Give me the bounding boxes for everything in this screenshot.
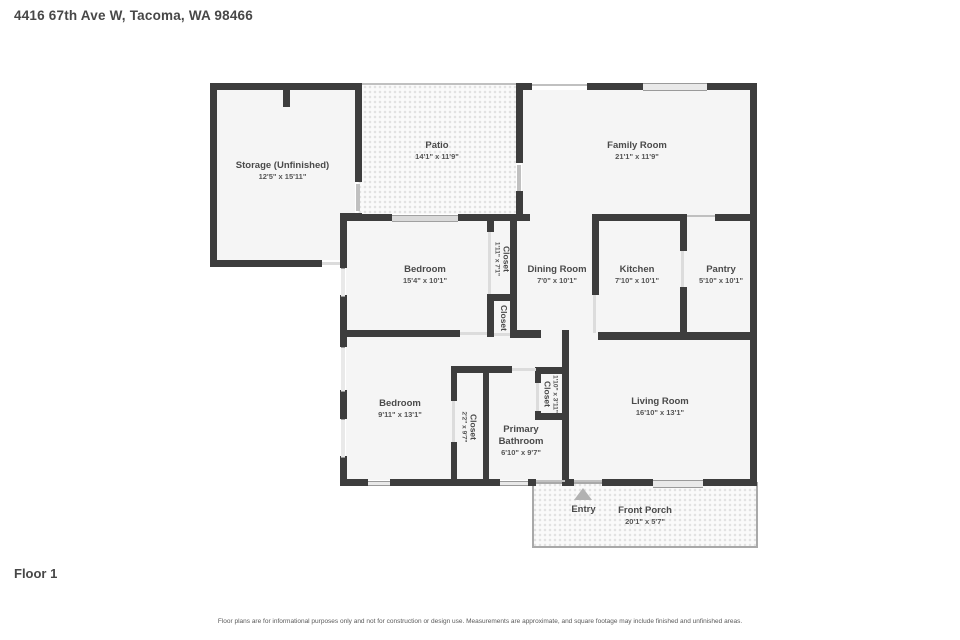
wall-segment bbox=[483, 366, 512, 373]
wall-segment bbox=[487, 220, 494, 232]
bedroom-upper-window bbox=[341, 268, 345, 297]
front-door bbox=[574, 480, 602, 482]
room-dimensions: 21'1" x 11'9" bbox=[557, 152, 717, 161]
room-name: Pantry bbox=[681, 264, 761, 276]
entry-arrow-icon bbox=[574, 488, 592, 500]
wall-segment bbox=[516, 83, 523, 163]
closet-hall-upper-door bbox=[488, 232, 491, 294]
porch-side-opening bbox=[536, 480, 565, 482]
room-label-storage: Storage (Unfinished) 12'5" x 15'11" bbox=[212, 160, 353, 181]
room-label-closet-hall-upper: Closet 1'11" x 7'1" bbox=[493, 242, 510, 276]
floor-plan-page: 4416 67th Ave W, Tacoma, WA 98466 Storag… bbox=[0, 0, 960, 640]
room-name: Bedroom bbox=[365, 264, 485, 276]
room-name: Family Room bbox=[557, 140, 717, 152]
bathroom-door bbox=[512, 368, 536, 371]
room-label-bedroom-upper: Bedroom 15'4" x 10'1" bbox=[365, 264, 485, 285]
room-dimensions: 7'0" x 10'1" bbox=[517, 276, 597, 285]
wall-segment bbox=[602, 479, 653, 486]
patio-family-opening bbox=[517, 165, 521, 191]
closet-bedroom-door bbox=[452, 401, 455, 442]
wall-segment bbox=[562, 330, 569, 486]
room-dimensions: 1'10" x 3'11" bbox=[551, 375, 558, 413]
room-label-pantry: Pantry 5'10" x 10'1" bbox=[681, 264, 761, 285]
family-room-window bbox=[643, 83, 707, 91]
wall-segment bbox=[565, 479, 574, 486]
floor-plan: Storage (Unfinished) 12'5" x 15'11" Pati… bbox=[0, 0, 960, 640]
room-label-family-room: Family Room 21'1" x 11'9" bbox=[557, 140, 717, 161]
living-room-window bbox=[653, 480, 703, 488]
wall-segment bbox=[355, 83, 362, 182]
wall-segment bbox=[340, 295, 347, 347]
wall-segment bbox=[283, 83, 290, 107]
wall-segment bbox=[510, 214, 517, 338]
wall-segment bbox=[680, 287, 687, 333]
storage-patio-opening bbox=[356, 184, 360, 211]
room-name: Bedroom bbox=[350, 398, 450, 410]
wall-segment bbox=[340, 330, 460, 337]
room-name: Closet bbox=[501, 246, 511, 272]
room-name: Closet bbox=[541, 381, 551, 407]
room-label-kitchen: Kitchen 7'10" x 10'1" bbox=[597, 264, 677, 285]
room-dimensions: 2'2" x 9'7" bbox=[460, 412, 467, 443]
room-dimensions: 5'10" x 10'1" bbox=[681, 276, 761, 285]
family-room-top-opening bbox=[532, 84, 587, 86]
room-dimensions: 14'1" x 11'9" bbox=[367, 152, 507, 161]
bedroom-lower-bottom-window bbox=[368, 481, 390, 486]
patio-edge-line bbox=[358, 83, 516, 85]
room-dimensions: 1'11" x 7'1" bbox=[493, 242, 500, 276]
room-dimensions: 16'10" x 13'1" bbox=[600, 408, 720, 417]
disclaimer-text: Floor plans are for informational purpos… bbox=[0, 618, 960, 625]
room-name: Closet bbox=[498, 305, 508, 331]
kitchen-dining-opening bbox=[593, 295, 596, 333]
room-dimensions: 12'5" x 15'11" bbox=[212, 172, 353, 181]
room-name: Living Room bbox=[600, 396, 720, 408]
room-label-closet-bedroom: Closet 2'2" x 9'7" bbox=[460, 412, 477, 443]
room-name: Entry bbox=[571, 504, 595, 515]
wall-segment bbox=[516, 83, 532, 90]
wall-segment bbox=[528, 479, 536, 486]
room-name: Patio bbox=[367, 140, 507, 152]
wall-segment bbox=[340, 214, 392, 221]
wall-segment bbox=[535, 374, 541, 383]
wall-segment bbox=[587, 83, 643, 90]
wall-segment bbox=[340, 390, 347, 419]
room-label-closet-hall-lower: Closet bbox=[498, 305, 508, 331]
room-label-bedroom-lower: Bedroom 9'11" x 13'1" bbox=[350, 398, 450, 419]
bathroom-window bbox=[500, 481, 528, 486]
room-label-entry: Entry bbox=[556, 504, 611, 515]
room-label-living-room: Living Room 16'10" x 13'1" bbox=[600, 396, 720, 417]
wall-segment bbox=[210, 260, 322, 267]
room-dimensions: 15'4" x 10'1" bbox=[365, 276, 485, 285]
wall-segment bbox=[680, 221, 687, 251]
wall-segment bbox=[598, 332, 750, 340]
room-name: Dining Room bbox=[517, 264, 597, 276]
room-name: Kitchen bbox=[597, 264, 677, 276]
wall-segment bbox=[535, 413, 568, 420]
room-name: Storage (Unfinished) bbox=[212, 160, 353, 172]
room-label-patio: Patio 14'1" x 11'9" bbox=[367, 140, 507, 161]
patio-sliding-door bbox=[392, 215, 458, 222]
closet-hall-lower-door bbox=[494, 333, 510, 336]
storage-door bbox=[322, 262, 340, 265]
wall-segment bbox=[592, 214, 687, 221]
wall-segment bbox=[487, 301, 494, 337]
wall-segment bbox=[340, 220, 347, 268]
room-dimensions: 20'1" x 5'7" bbox=[595, 517, 695, 526]
wall-segment bbox=[451, 442, 457, 480]
wall-segment bbox=[715, 214, 750, 221]
room-name: Primary Bathroom bbox=[481, 424, 561, 448]
room-dimensions: 9'11" x 13'1" bbox=[350, 410, 450, 419]
wall-segment bbox=[703, 479, 757, 486]
wall-segment bbox=[535, 367, 568, 374]
room-dimensions: 6'10" x 9'7" bbox=[481, 448, 561, 457]
wall-segment bbox=[510, 330, 541, 338]
room-dimensions: 7'10" x 10'1" bbox=[597, 276, 677, 285]
room-label-dining-room: Dining Room 7'0" x 10'1" bbox=[517, 264, 597, 285]
wall-segment bbox=[390, 479, 500, 486]
closet-bathroom-door bbox=[536, 383, 539, 411]
pantry-opening bbox=[687, 215, 715, 217]
floor-label: Floor 1 bbox=[14, 566, 57, 581]
room-label-closet-bathroom: 1'10" x 3'11" Closet bbox=[541, 375, 558, 413]
wall-segment bbox=[458, 214, 530, 221]
wall-segment bbox=[451, 373, 457, 401]
bedroom-lower-window bbox=[341, 347, 345, 392]
room-label-primary-bathroom: Primary Bathroom 6'10" x 9'7" bbox=[481, 424, 561, 457]
wall-segment bbox=[340, 479, 368, 486]
bedroom-lower-window bbox=[341, 419, 345, 458]
bedroom-upper-door bbox=[460, 332, 487, 335]
room-name: Closet bbox=[468, 414, 478, 440]
